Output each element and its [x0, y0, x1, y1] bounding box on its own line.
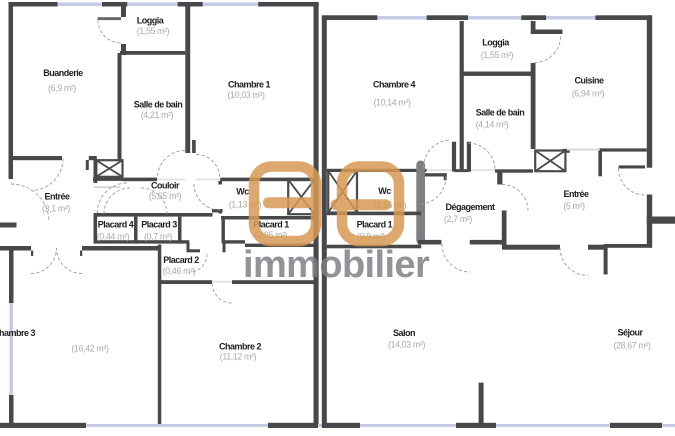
svg-text:Entrée: Entrée — [44, 192, 70, 202]
svg-text:(0,46 m²): (0,46 m²) — [163, 266, 196, 276]
svg-text:Loggia: Loggia — [137, 16, 165, 26]
svg-text:Chambre 4: Chambre 4 — [373, 80, 416, 90]
svg-text:(0,44 m²): (0,44 m²) — [97, 231, 130, 241]
svg-text:(0,7 m²): (0,7 m²) — [144, 231, 172, 241]
svg-text:Placard 1: Placard 1 — [357, 220, 393, 230]
svg-text:Placard 3: Placard 3 — [141, 220, 177, 230]
svg-text:immobilier: immobilier — [243, 244, 430, 286]
svg-text:Buanderie: Buanderie — [43, 68, 83, 78]
svg-text:(5 m²): (5 m²) — [563, 201, 585, 211]
svg-text:Wc: Wc — [378, 186, 391, 196]
svg-text:(16,42 m²): (16,42 m²) — [71, 344, 108, 354]
svg-text:Chambre 2: Chambre 2 — [219, 342, 262, 352]
svg-text:(5,65 m²): (5,65 m²) — [149, 191, 182, 201]
svg-text:(10,03 m²): (10,03 m²) — [227, 90, 264, 100]
svg-text:Chambre 1: Chambre 1 — [228, 80, 271, 90]
svg-text:(6,94 m²): (6,94 m²) — [572, 89, 605, 99]
svg-text:Salle de bain: Salle de bain — [476, 108, 525, 118]
svg-text:(14,03 m²): (14,03 m²) — [388, 340, 425, 350]
svg-text:Cuisine: Cuisine — [574, 76, 604, 86]
svg-text:(11,12 m²): (11,12 m²) — [220, 352, 257, 362]
svg-text:(6,9 m²): (6,9 m²) — [48, 83, 76, 93]
svg-text:(4,14 m²): (4,14 m²) — [476, 120, 509, 130]
svg-text:Dégagement: Dégagement — [445, 202, 495, 212]
svg-text:(4,21 m²): (4,21 m²) — [141, 110, 174, 120]
svg-text:(3,1 m²): (3,1 m²) — [42, 204, 70, 214]
svg-text:Séjour: Séjour — [617, 328, 643, 338]
svg-text:(28,67 m²): (28,67 m²) — [613, 341, 650, 351]
svg-text:Placard 4: Placard 4 — [98, 220, 134, 230]
svg-text:Loggia: Loggia — [482, 38, 510, 48]
svg-text:(2,7 m²): (2,7 m²) — [444, 214, 472, 224]
svg-text:Entrée: Entrée — [563, 189, 589, 199]
svg-text:Salle de bain: Salle de bain — [134, 100, 183, 110]
svg-text:(1,55 m²): (1,55 m²) — [481, 50, 514, 60]
svg-text:Chambre 3: Chambre 3 — [0, 328, 35, 338]
svg-text:Couloir: Couloir — [151, 181, 180, 191]
svg-text:(1,55 m²): (1,55 m²) — [137, 26, 170, 36]
svg-text:(10,14 m²): (10,14 m²) — [373, 98, 410, 108]
svg-text:Wc: Wc — [236, 187, 249, 197]
svg-text:Salon: Salon — [393, 328, 415, 338]
svg-text:Placard 2: Placard 2 — [163, 255, 199, 265]
